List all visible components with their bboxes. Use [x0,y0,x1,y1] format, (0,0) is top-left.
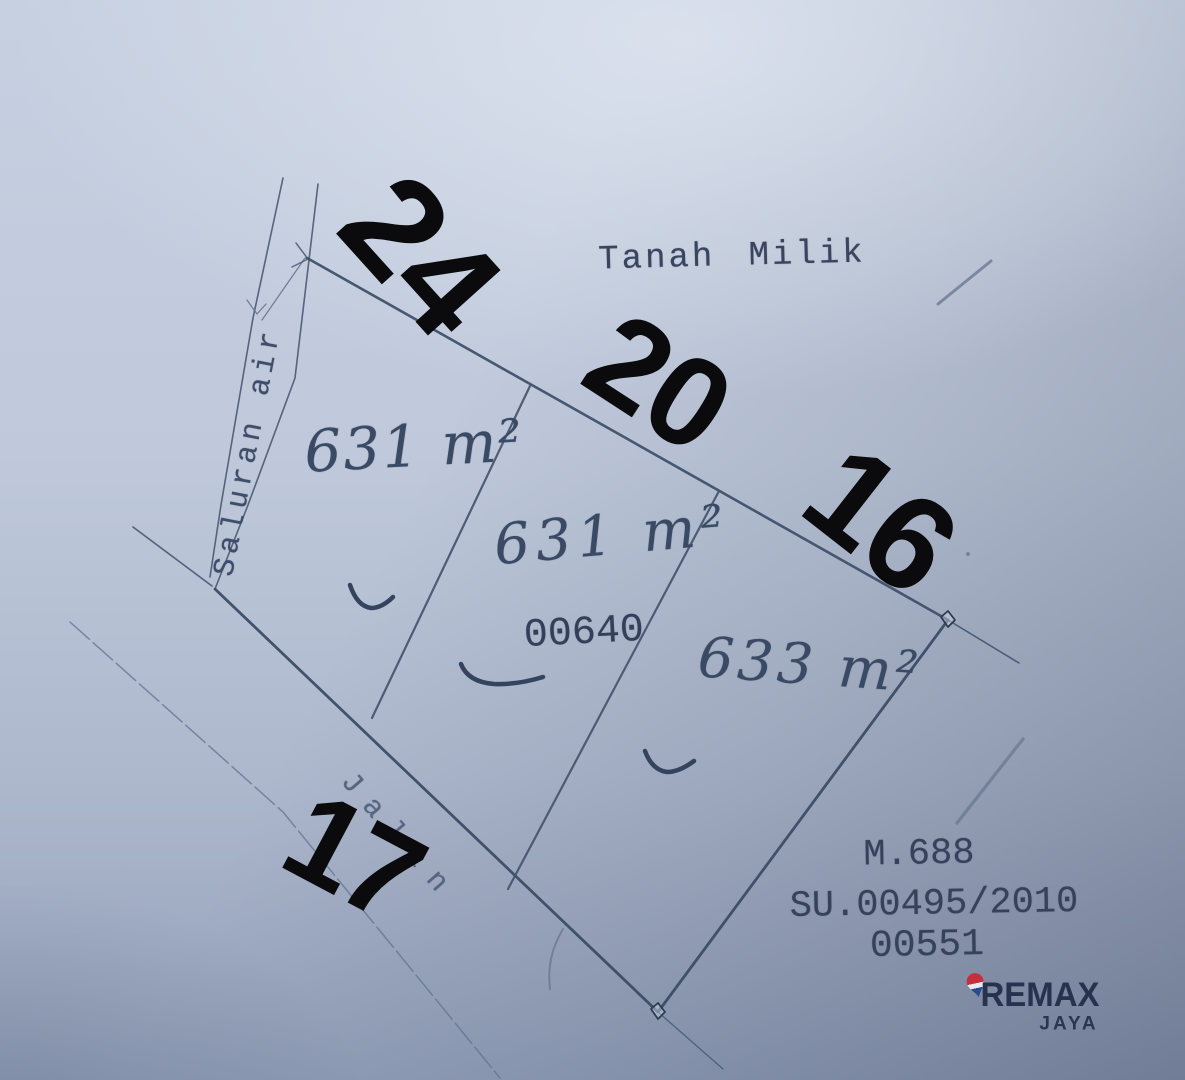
channel-arrowhead-mark [292,243,308,267]
checkmark-plot-2 [461,664,543,684]
certificate-extra-number: 00551 [870,926,985,966]
remax-office-label: JAYA [1039,1015,1098,1034]
certificate-su-number: SU.00495/2010 [789,884,1078,926]
checkmark-plot-1 [350,585,393,608]
plot-1-area-label: 631 m² [303,411,525,480]
channel-junction-pencil-line [262,258,305,320]
ink-speck [966,552,970,556]
remax-wordmark: REMAX [980,978,1099,1012]
pencil-stroke-top-right [938,261,991,304]
certificate-m-number: M.688 [863,836,975,875]
plot-3-area-label: 633 m² [696,630,924,702]
pencil-arc-bottom [549,929,563,989]
checkmark-plot-3 [645,751,694,772]
top-boundary-extension [948,620,1019,663]
right-boundary-extension [658,1012,723,1069]
parcel-number-label: 00640 [523,611,645,657]
road-frontage-left-stub [133,527,212,586]
land-status-label: Tanah Milik [598,237,866,278]
land-survey-sketch-photo: Tanah Milik 00640 M.688 SU.00495/2010 00… [0,0,1185,1080]
pencil-stroke-right [957,739,1023,823]
